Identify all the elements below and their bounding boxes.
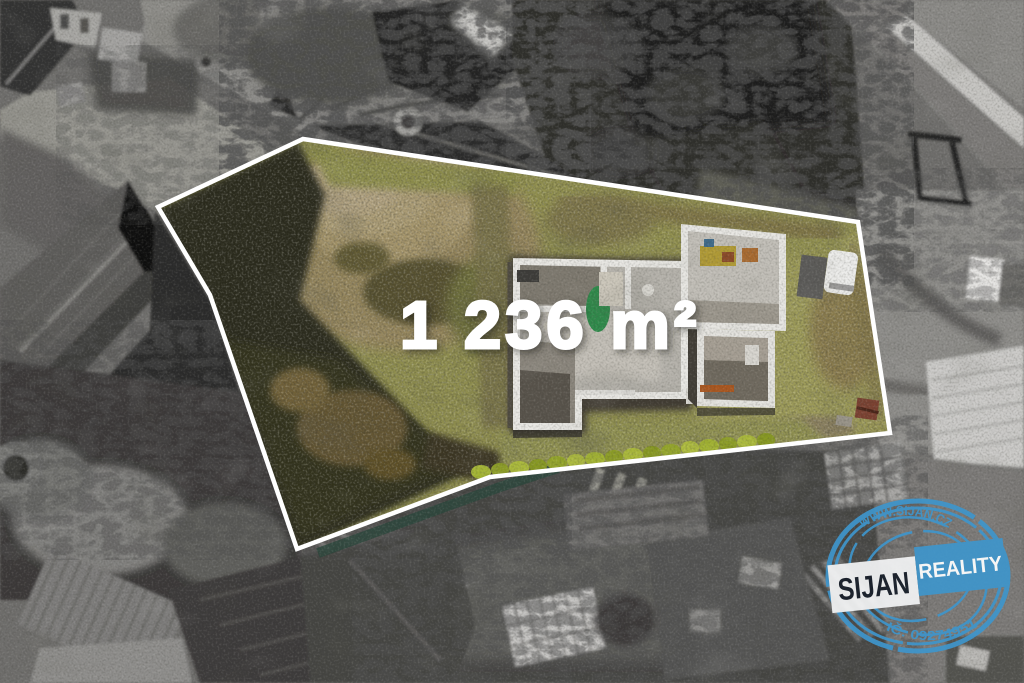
svg-text:SIJAN: SIJAN [836, 565, 911, 607]
svg-text:1 236 m²: 1 236 m² [400, 288, 700, 363]
